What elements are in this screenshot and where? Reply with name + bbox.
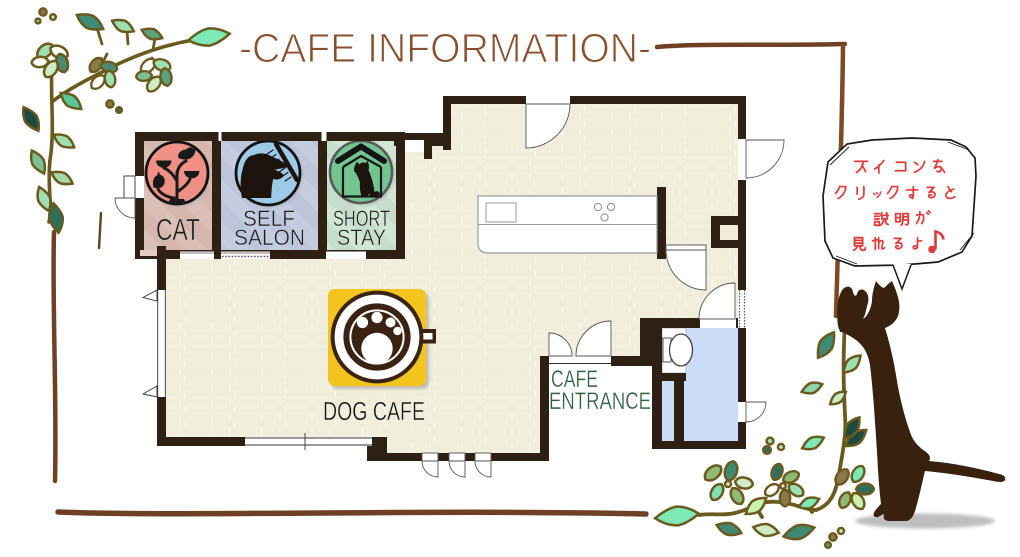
svg-text:ENTRANCE: ENTRANCE	[549, 388, 651, 415]
svg-text:DOG CAFE: DOG CAFE	[323, 396, 425, 426]
svg-text:SALON: SALON	[234, 225, 305, 250]
svg-text:STAY: STAY	[337, 225, 386, 250]
svg-text:CAT: CAT	[156, 212, 200, 247]
svg-text:-CAFE INFORMATION-: -CAFE INFORMATION-	[239, 25, 651, 71]
